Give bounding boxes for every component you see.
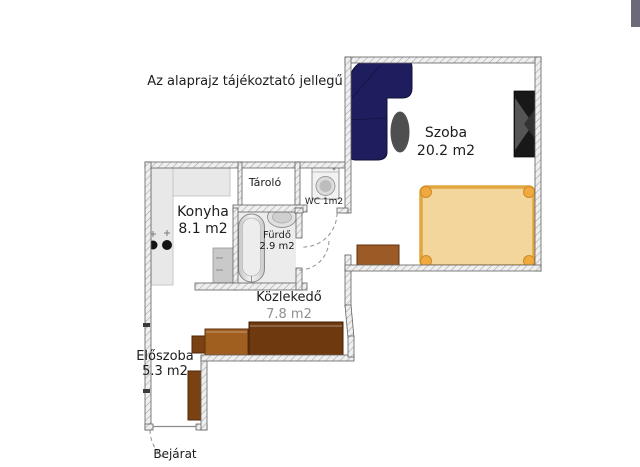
wardrobe-medium bbox=[205, 329, 248, 356]
wall-szoba-top bbox=[345, 57, 541, 63]
wall-hall-right-lower bbox=[348, 336, 354, 357]
room-label-wc: WC 1m2 bbox=[300, 197, 348, 207]
wc-door-arc bbox=[303, 213, 337, 247]
double-bed bbox=[421, 187, 535, 267]
wall-szoba-bottom bbox=[345, 265, 541, 271]
kitchen-cabinet bbox=[213, 248, 236, 283]
wall-hall-right-diagonal bbox=[345, 305, 354, 338]
disclaimer-text: Az alaprajz tájékoztató jellegű bbox=[143, 74, 347, 89]
room-label-szoba: Szoba 20.2 m2 bbox=[398, 124, 494, 160]
floor-plan-drawing bbox=[0, 0, 640, 467]
wall-furdo-right-lower bbox=[296, 268, 302, 290]
washing-machine-icon bbox=[312, 166, 339, 199]
wall-tick-upper bbox=[143, 323, 150, 327]
wardrobe-large bbox=[249, 322, 343, 357]
room-name: Konyha bbox=[157, 204, 249, 221]
room-name: Szoba bbox=[398, 124, 494, 142]
room-label-eloszoba: Előszoba 5.3 m2 bbox=[126, 349, 204, 379]
room-name: WC 1m2 bbox=[300, 197, 348, 207]
floor-plan: Az alaprajz tájékoztató jellegű Szoba 20… bbox=[0, 0, 640, 467]
room-label-tarolo: Tároló bbox=[237, 176, 293, 189]
wall-entrance-stub-left bbox=[145, 424, 153, 430]
wall-szoba-right bbox=[535, 57, 541, 271]
dresser bbox=[357, 245, 399, 266]
wall-kitchen-top bbox=[145, 162, 348, 168]
room-name: Közlekedő bbox=[242, 289, 336, 306]
room-name: Fürdő bbox=[250, 230, 304, 241]
room-label-konyha: Konyha 8.1 m2 bbox=[157, 204, 249, 238]
room-label-kozlekedo: Közlekedő 7.8 m2 bbox=[242, 289, 336, 323]
room-name: Tároló bbox=[237, 176, 293, 189]
room-label-furdo: Fürdő 2.9 m2 bbox=[250, 230, 304, 252]
wall-hall-bottom bbox=[201, 355, 354, 361]
room-area: 20.2 m2 bbox=[398, 142, 494, 160]
entrance-label: Bejárat bbox=[143, 447, 207, 461]
screenshot-artifact bbox=[631, 0, 640, 27]
wall-tick-lower bbox=[143, 389, 150, 393]
wall-wc-bottom-left bbox=[295, 208, 303, 213]
room-area: 8.1 m2 bbox=[157, 221, 249, 238]
room-area: 7.8 m2 bbox=[242, 306, 336, 323]
tv-cabinet bbox=[514, 91, 537, 157]
room-area: 2.9 m2 bbox=[250, 241, 304, 252]
room-name: Előszoba bbox=[126, 349, 204, 364]
wall-wc-bottom-right bbox=[337, 208, 348, 213]
room-area: 5.3 m2 bbox=[126, 364, 204, 379]
wall-hall-right-upper bbox=[345, 255, 351, 307]
